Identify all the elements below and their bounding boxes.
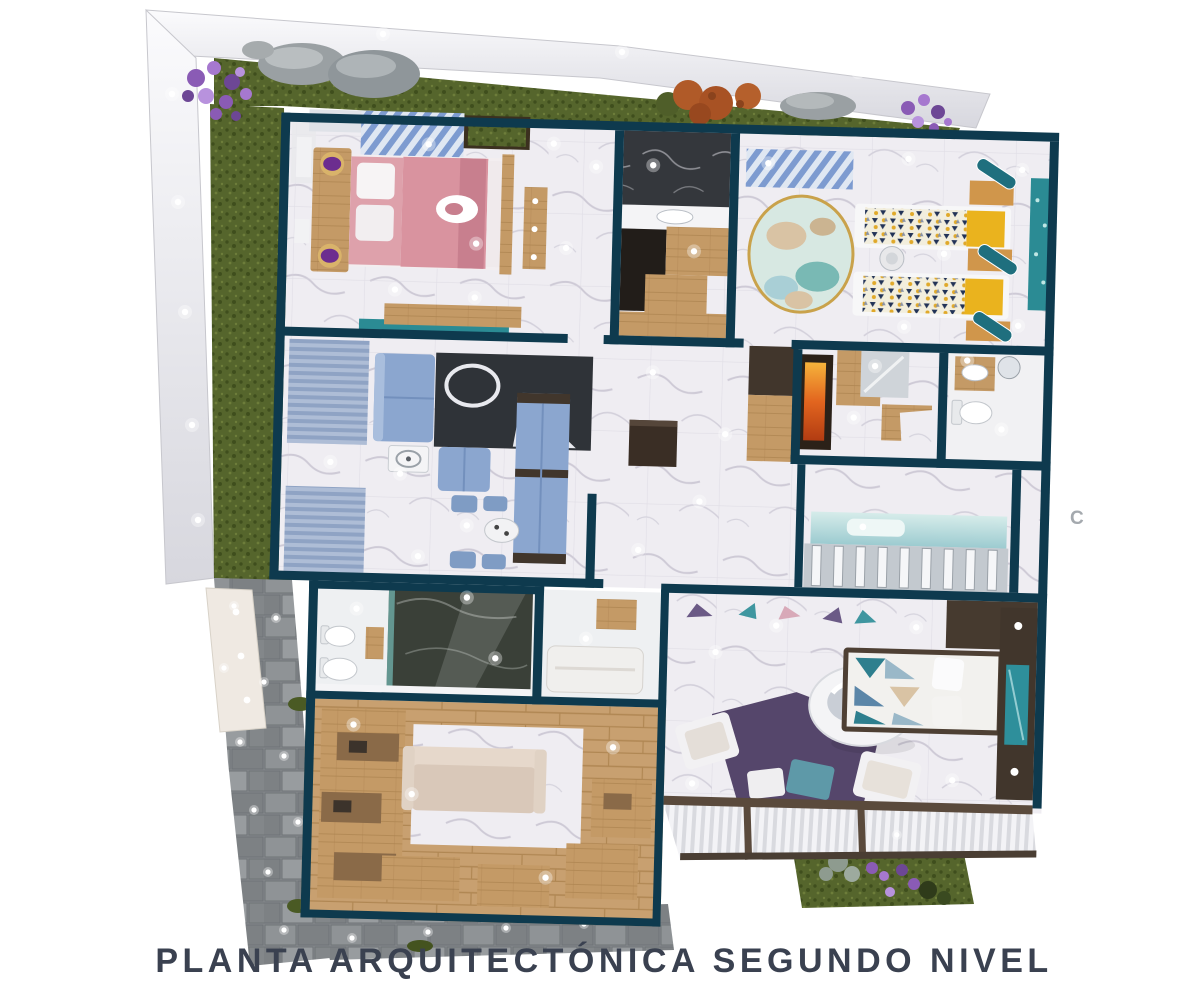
kids-bed-1-pillow	[966, 210, 1005, 247]
hall-table	[628, 420, 677, 467]
hall-cabinet-upper	[748, 346, 798, 396]
chair-4	[482, 554, 506, 570]
balusters	[803, 543, 1008, 592]
plan-caption: PLANTA ARQUITECTÓNICA SEGUNDO NIVEL	[155, 942, 1052, 980]
shower-dark-stone	[386, 587, 533, 691]
master-bed	[841, 647, 1003, 735]
sofa-chaise	[373, 353, 435, 443]
bench-low-3	[565, 843, 638, 900]
duvet-fold	[486, 161, 503, 267]
side-console-top	[296, 137, 312, 177]
bench-low-2	[477, 864, 550, 908]
floor-plan-render: PLANTA ARQUITECTÓNICA SEGUNDO NIVEL C	[0, 0, 1200, 1000]
bed-double	[310, 147, 514, 276]
staircase	[803, 465, 1041, 593]
pillow-2	[931, 695, 962, 726]
sofa-long	[513, 393, 570, 564]
window-blinds-bottom	[284, 486, 366, 573]
fireplace-fire	[803, 362, 826, 441]
round-mirror	[998, 356, 1021, 379]
pillow-top	[356, 162, 395, 199]
closet-stone-wall	[622, 130, 731, 209]
closet-cabinet-2	[644, 274, 707, 316]
nook-desk	[596, 599, 637, 630]
bench-low-1	[381, 855, 460, 901]
glass-rail	[810, 511, 1007, 548]
watermark-mark: C	[1070, 508, 1084, 529]
desk	[384, 303, 522, 328]
bath-wood-unit	[365, 627, 384, 659]
dining-table	[484, 518, 519, 543]
kids-bed-1	[854, 204, 1011, 252]
page: PLANTA ARQUITECTÓNICA SEGUNDO NIVEL C	[0, 0, 1200, 1000]
hall-cabinet-lower	[747, 395, 798, 462]
stair-side-landing	[1018, 471, 1041, 593]
pillow-1	[931, 657, 964, 692]
toilet	[952, 400, 993, 425]
chair-3	[483, 496, 507, 512]
beige-sofa	[401, 746, 547, 814]
glass-shelf	[847, 518, 905, 537]
striped-rug	[746, 149, 854, 190]
kids-bed-2	[852, 272, 1009, 320]
kids-bed-2-pillow	[964, 278, 1003, 315]
closet-desk	[619, 311, 727, 338]
stair-landing	[805, 465, 1012, 516]
chair-2	[450, 551, 476, 569]
sofa-mid	[438, 447, 491, 492]
window-blinds-top	[287, 339, 370, 445]
round-rug	[747, 195, 854, 314]
side-console-bottom	[294, 219, 310, 243]
chair-1	[451, 495, 477, 513]
pillow-bottom	[355, 204, 394, 241]
coffee-table	[388, 445, 429, 472]
right-bathroom	[947, 353, 1045, 462]
